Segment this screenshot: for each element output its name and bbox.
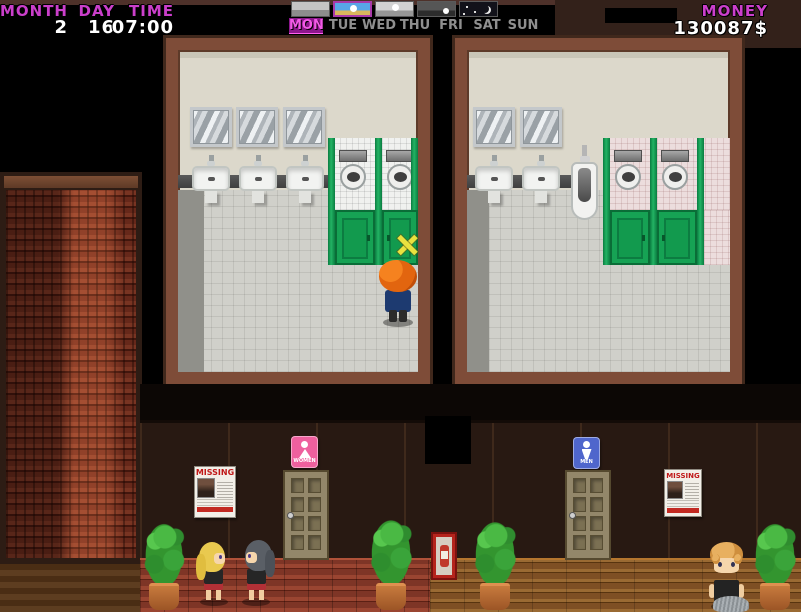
room-men-bathroom [455,38,742,384]
fire-extinguisher-cabinet[interactable] [431,532,457,580]
weekday-strip: MON TUE WED THU FRI SAT SUN [289,18,541,34]
npc-dark-haired-girl[interactable] [237,540,275,606]
mirror [473,107,515,147]
men-restroom-sign: MEN [573,437,600,469]
weekday-sat: SAT [469,18,505,34]
sink[interactable] [192,155,230,203]
shutter-beam [4,176,138,188]
month-value: 2 [54,20,68,36]
calendar-hud: MONTH 2 DAY 16 TIME 07:00 [6,2,174,36]
toilet[interactable] [613,150,643,190]
potted-plant [472,516,518,610]
fire-extinguisher-icon [440,545,449,567]
npc-gray-head[interactable] [713,596,749,612]
door-knob [287,512,294,519]
poster-banner [197,507,233,512]
mirror [190,107,232,147]
time-of-day-strip [291,1,498,17]
woman-icon [301,441,308,448]
stall-partition [650,138,657,265]
stall-partition [328,138,335,265]
man-icon [583,441,590,448]
poster-title: MISSING [666,472,700,480]
mirror [520,107,562,147]
mirror [236,107,278,147]
women-restroom-sign: WOMEN [291,436,318,468]
sink[interactable] [522,155,560,203]
stall-door[interactable] [657,210,697,265]
men-bathroom-door[interactable] [565,470,611,560]
floor-shade [178,190,204,372]
x-marker-icon [396,234,418,256]
door-knob [569,512,576,519]
stall-side-tiles [704,210,730,265]
women-bathroom-door[interactable] [283,470,329,560]
npc-blonde-girl[interactable] [196,542,232,606]
stall-door[interactable] [610,210,650,265]
toilet[interactable] [660,150,690,190]
room-women-bathroom [166,38,430,384]
potted-plant [752,518,798,610]
weekday-thu: THU [397,18,433,34]
poster-photo [667,481,683,499]
money-hud: MONEY 130087$ [620,2,768,37]
player-character[interactable] [378,260,418,328]
dawn-icon [291,1,330,17]
stall-partition [697,138,704,265]
potted-plant [142,518,186,610]
wall-opening [425,416,471,464]
dusk-icon [417,1,456,17]
potted-plant [368,514,414,610]
roller-shutter [6,190,136,558]
game-screen: MISSING MISSING WOMEN MEN [0,0,801,612]
poster-photo [197,478,215,498]
stall-door[interactable] [335,210,375,265]
weekday-fri: FRI [433,18,469,34]
missing-poster[interactable]: MISSING [664,469,702,517]
weekday-sun: SUN [505,18,541,34]
weekday-wed: WED [361,18,397,34]
poster-title: MISSING [196,469,234,477]
left-floorboards [0,564,140,612]
money-value: 130087$ [673,20,768,37]
night-icon [459,1,498,17]
urinal[interactable] [571,145,598,220]
stall-partition [603,138,610,265]
noon-icon [375,1,414,17]
sink[interactable] [286,155,324,203]
day-icon-selected [333,1,372,17]
poster-banner [667,508,699,513]
player-hair [379,260,417,292]
stall-partition [375,138,382,265]
toilet[interactable] [338,150,368,190]
weekday-tue: TUE [325,18,361,34]
sink[interactable] [475,155,513,203]
missing-poster[interactable]: MISSING [194,466,236,518]
moon-icon [481,5,489,13]
floor-shade [467,190,489,372]
mirror [283,107,325,147]
wall-shadow-band [140,384,801,420]
sink[interactable] [239,155,277,203]
time-value: 07:00 [112,20,174,36]
weekday-mon: MON [289,18,323,34]
